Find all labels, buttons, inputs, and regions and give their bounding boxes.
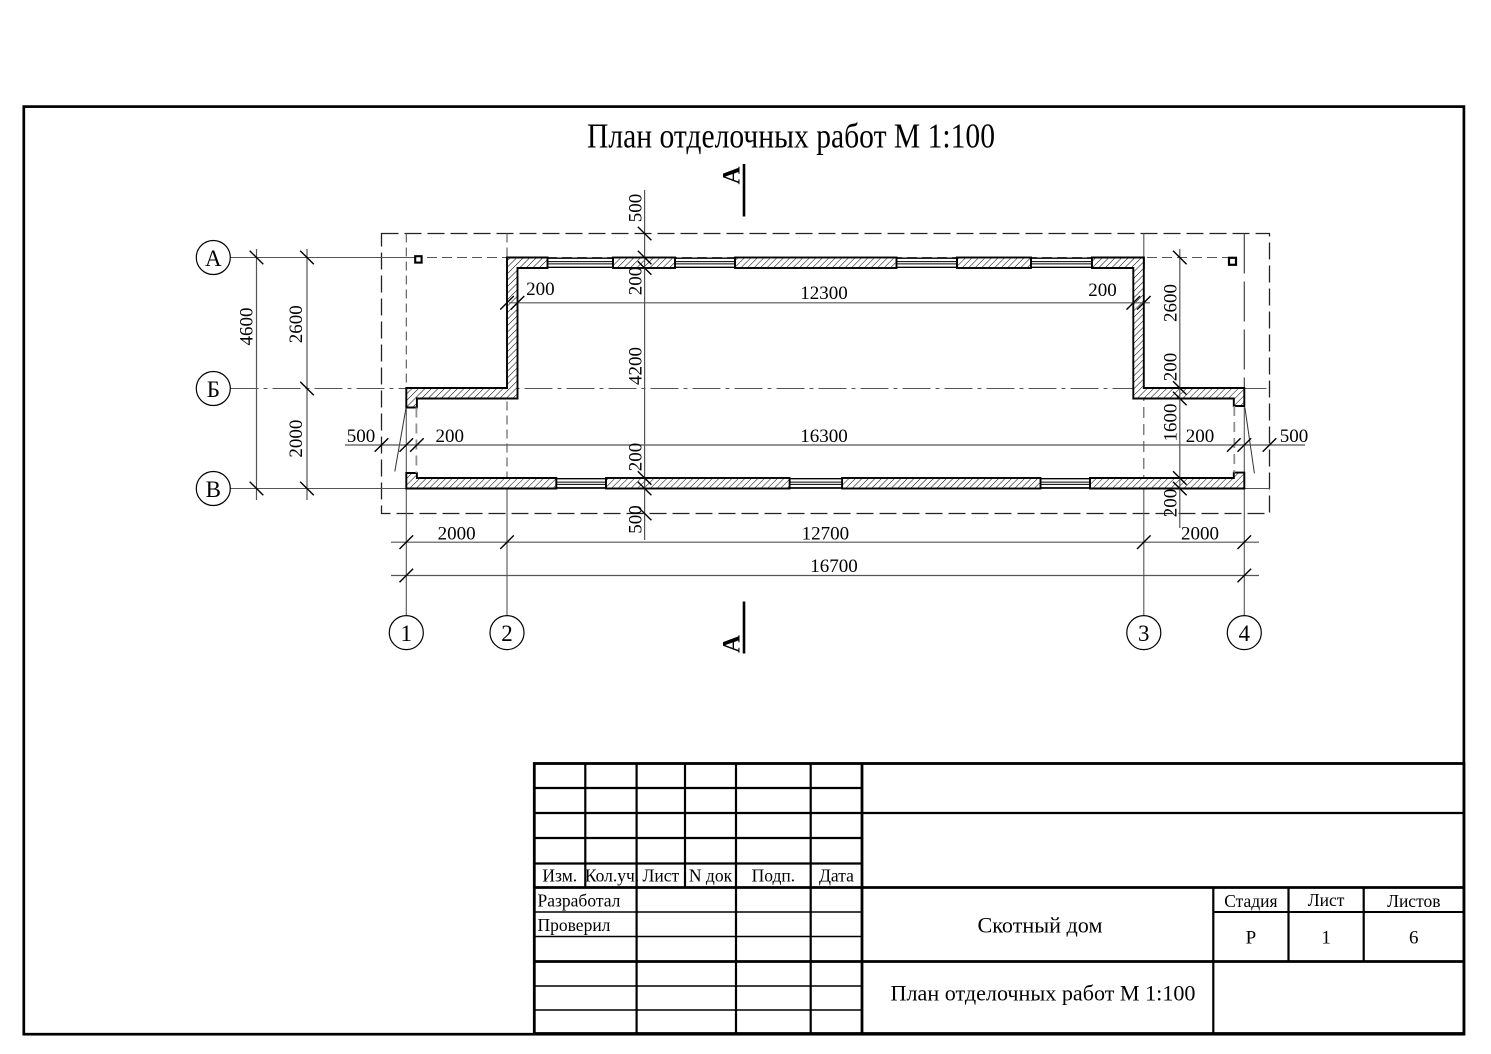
svg-text:200: 200 (436, 426, 465, 447)
svg-text:Стадия: Стадия (1224, 891, 1277, 911)
svg-text:16300: 16300 (800, 426, 848, 447)
svg-text:В: В (206, 477, 221, 502)
svg-text:12300: 12300 (800, 283, 848, 304)
svg-text:16700: 16700 (810, 556, 858, 577)
svg-text:6: 6 (1409, 928, 1419, 949)
svg-text:1: 1 (401, 621, 413, 646)
svg-text:200: 200 (526, 279, 555, 300)
svg-text:2600: 2600 (1160, 284, 1181, 322)
svg-text:200: 200 (1160, 489, 1181, 518)
svg-text:2600: 2600 (286, 305, 307, 343)
svg-text:N док: N док (689, 866, 733, 886)
svg-text:200: 200 (1088, 280, 1117, 301)
svg-text:Проверил: Проверил (538, 915, 611, 935)
svg-text:200: 200 (626, 267, 647, 296)
svg-text:4200: 4200 (626, 347, 647, 385)
svg-text:Дата: Дата (819, 866, 854, 886)
svg-text:Подп.: Подп. (752, 866, 796, 886)
svg-text:12700: 12700 (802, 524, 850, 545)
svg-text:500: 500 (1280, 426, 1309, 447)
svg-text:4: 4 (1239, 621, 1251, 646)
svg-text:200: 200 (1186, 426, 1215, 447)
svg-text:2: 2 (501, 621, 513, 646)
svg-text:Разработал: Разработал (538, 891, 621, 911)
svg-text:Б: Б (207, 377, 220, 402)
svg-text:А: А (205, 246, 222, 271)
svg-text:Кол.уч.: Кол.уч. (585, 866, 639, 886)
svg-text:500: 500 (347, 426, 376, 447)
svg-text:1: 1 (1321, 928, 1331, 949)
svg-text:Листов: Листов (1387, 891, 1440, 911)
svg-text:Р: Р (1246, 928, 1257, 949)
svg-text:А: А (719, 166, 746, 184)
svg-text:2000: 2000 (286, 420, 307, 458)
svg-text:500: 500 (626, 505, 647, 534)
svg-text:3: 3 (1138, 621, 1150, 646)
svg-text:2000: 2000 (438, 524, 476, 545)
svg-text:Изм.: Изм. (542, 866, 577, 886)
svg-text:4600: 4600 (236, 308, 257, 346)
svg-text:200: 200 (1160, 353, 1181, 382)
svg-text:200: 200 (626, 443, 647, 472)
svg-text:Лист: Лист (1308, 890, 1345, 910)
svg-text:Скотный дом: Скотный дом (978, 913, 1103, 938)
svg-text:2000: 2000 (1181, 524, 1219, 545)
svg-text:А: А (719, 635, 746, 653)
svg-text:План отделочных работ М 1:100: План отделочных работ М 1:100 (587, 118, 995, 156)
svg-text:1600: 1600 (1160, 404, 1181, 442)
svg-text:Лист: Лист (642, 866, 679, 886)
svg-text:План отделочных работ М 1:100: План отделочных работ М 1:100 (891, 981, 1196, 1006)
svg-text:500: 500 (626, 194, 647, 223)
